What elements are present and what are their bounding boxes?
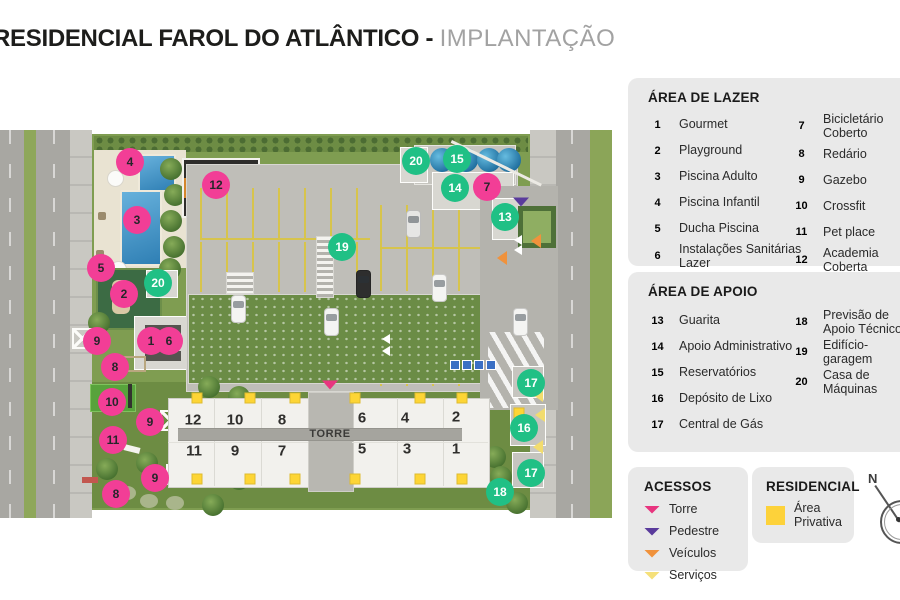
- legend-item-label: Veículos: [669, 546, 716, 560]
- bush: [166, 496, 184, 510]
- legend-apoio-col1: 13 Guarita 14 Apoio Administrativo 15 Re…: [646, 308, 792, 437]
- area-privativa-square: [415, 393, 426, 404]
- marker-number-badge: 13: [646, 309, 669, 332]
- legend-item: 7 Bicicletário Coberto: [790, 112, 900, 141]
- marker-number-badge: 8: [790, 143, 813, 166]
- direction-arrow-icon: [514, 235, 522, 245]
- area-privativa-square: [245, 474, 256, 485]
- map-marker: 2: [110, 280, 138, 308]
- legend-item-label: Torre: [669, 502, 697, 516]
- legend-item: 18 Previsão de Apoio Técnico: [790, 308, 900, 337]
- legend-item-label: Crossfit: [823, 199, 865, 213]
- legend-apoio-header: ÁREA DE APOIO: [648, 284, 758, 299]
- map-marker: 4: [116, 148, 144, 176]
- legend-item-label: Área Privativa: [794, 501, 854, 530]
- map-marker: 3: [123, 206, 151, 234]
- legend-item-label: Serviços: [669, 568, 717, 582]
- legend-item: Torre: [644, 500, 719, 519]
- crossfit-rack: [128, 384, 132, 408]
- torre-access-arrow-icon: [322, 381, 338, 390]
- unit-number: 3: [403, 441, 411, 458]
- area-privativa-square: [415, 474, 426, 485]
- access-arrow-icon: [644, 506, 660, 514]
- legend-residencial-items: Área Privativa: [766, 501, 854, 530]
- palm-tree: [160, 158, 182, 180]
- area-privativa-square: [192, 474, 203, 485]
- direction-arrow-icon: [382, 346, 390, 356]
- grass-verge-right: [590, 130, 612, 518]
- marker-number-badge: 20: [790, 370, 813, 393]
- marker-number-badge: 2: [646, 139, 669, 162]
- direction-arrow-icon: [514, 245, 522, 255]
- legend-item-label: Guarita: [679, 313, 720, 327]
- car: [432, 274, 447, 302]
- lane-line: [53, 130, 55, 518]
- legend-item-label: Edifício-garagem: [823, 338, 900, 367]
- area-privativa-square: [290, 393, 301, 404]
- map-marker: 6: [155, 327, 183, 355]
- map-marker: 15: [443, 145, 471, 173]
- legend-item: 16 Depósito de Lixo: [646, 386, 792, 411]
- veiculos-access-arrow-icon: [531, 234, 541, 248]
- legend-item-label: Bicicletário Coberto: [823, 112, 900, 141]
- page-title-main: RESIDENCIAL FAROL DO ATLÂNTICO -: [0, 25, 433, 52]
- access-arrow-icon: [644, 572, 660, 580]
- legend-item-label: Academia Coberta: [823, 246, 900, 275]
- map-marker: 11: [99, 426, 127, 454]
- map-marker: 18: [486, 478, 514, 506]
- legend-item: Pedestre: [644, 522, 719, 541]
- legend-residencial-header: RESIDENCIAL: [766, 479, 860, 494]
- map-marker: 12: [202, 171, 230, 199]
- site-plan-page: RESIDENCIAL FAROL DO ATLÂNTICO - IMPLANT…: [0, 0, 900, 600]
- marker-number-badge: 3: [646, 165, 669, 188]
- car: [406, 210, 421, 238]
- accessible-parking-sign: [450, 360, 460, 370]
- table: [98, 212, 106, 220]
- access-arrow-icon: [644, 550, 660, 558]
- unit-number: 5: [358, 441, 366, 458]
- map-marker: 16: [510, 414, 538, 442]
- map-marker: 10: [98, 388, 126, 416]
- page-title-sub: IMPLANTAÇÃO: [440, 25, 616, 52]
- garage-stair: [226, 272, 254, 294]
- legend-item: 8 Redário: [790, 142, 900, 167]
- marker-number-badge: 5: [646, 217, 669, 240]
- unit-number: 12: [185, 412, 202, 429]
- legend-item: 9 Gazebo: [790, 168, 900, 193]
- legend-lazer-header: ÁREA DE LAZER: [648, 90, 760, 105]
- legend-lazer-col2: 7 Bicicletário Coberto 8 Redário 9 Gazeb…: [790, 112, 900, 275]
- area-privativa-square: [192, 393, 203, 404]
- legend-item-label: Pedestre: [669, 524, 719, 538]
- car: [324, 308, 339, 336]
- marker-number-badge: 9: [790, 169, 813, 192]
- compass-center-dot: [896, 517, 900, 522]
- marker-number-badge: 15: [646, 361, 669, 384]
- car: [513, 308, 528, 336]
- accessible-parking-sign: [462, 360, 472, 370]
- unit-number: 1: [452, 441, 460, 458]
- unit-number: 10: [227, 412, 244, 429]
- legend-acessos: ACESSOS Torre Pedestre Veículos: [628, 467, 748, 571]
- marker-number-badge: 19: [790, 341, 813, 364]
- palm-tree: [163, 236, 185, 258]
- legend-acessos-header: ACESSOS: [644, 479, 711, 494]
- accessible-parking-sign: [486, 360, 496, 370]
- bench: [82, 477, 98, 483]
- map-marker: 14: [441, 174, 469, 202]
- car: [356, 270, 371, 298]
- legend-item: 17 Central de Gás: [646, 412, 792, 437]
- legend-item-label: Playground: [679, 143, 742, 157]
- tower-core: [308, 392, 354, 492]
- legend-acessos-items: Torre Pedestre Veículos Serviços: [644, 500, 719, 585]
- legend-item-label: Apoio Administrativo: [679, 339, 792, 353]
- page-title: RESIDENCIAL FAROL DO ATLÂNTICO - IMPLANT…: [0, 25, 615, 53]
- legend-item: 10 Crossfit: [790, 194, 900, 219]
- unit-number: 8: [278, 412, 286, 429]
- pedestre-access-arrow-icon: [513, 198, 529, 207]
- area-privativa-square: [350, 474, 361, 485]
- map-marker: 9: [141, 464, 169, 492]
- lane-line: [9, 130, 11, 518]
- map-marker: 19: [328, 233, 356, 261]
- legend-item: 12 Academia Coberta: [790, 246, 900, 275]
- accessible-parking-sign: [474, 360, 484, 370]
- area-privativa-square: [457, 474, 468, 485]
- legend-area-de-lazer: ÁREA DE LAZER 1 Gourmet 2 Playground 3 P…: [628, 78, 900, 266]
- area-privativa-square: [350, 393, 361, 404]
- bush: [140, 494, 158, 508]
- legend-item: 11 Pet place: [790, 220, 900, 245]
- servicos-access-arrow-icon: [533, 440, 543, 454]
- car: [231, 295, 246, 323]
- legend-area-de-apoio: ÁREA DE APOIO 13 Guarita 14 Apoio Admini…: [628, 272, 900, 452]
- marker-number-badge: 6: [646, 245, 669, 268]
- street-left-median: [24, 130, 36, 518]
- legend-item: 14 Apoio Administrativo: [646, 334, 792, 359]
- legend-item: 13 Guarita: [646, 308, 792, 333]
- unit-number: 4: [401, 410, 409, 427]
- unit-number: 7: [278, 443, 286, 460]
- access-arrow-icon: [644, 528, 660, 536]
- map-marker: 20: [402, 147, 430, 175]
- unit-divider: [352, 442, 488, 443]
- palm-tree: [160, 210, 182, 232]
- legend-apoio-col2: 18 Previsão de Apoio Técnico 19 Edifício…: [790, 308, 900, 396]
- marker-number-badge: 10: [790, 195, 813, 218]
- legend-item: 20 Casa de Máquinas: [790, 368, 900, 397]
- legend-item: 15 Reservatórios: [646, 360, 792, 385]
- area-privativa-swatch: [766, 506, 785, 525]
- map-marker: 20: [144, 269, 172, 297]
- legend-item-label: Central de Gás: [679, 417, 763, 431]
- area-privativa-square: [290, 474, 301, 485]
- legend-item-label: Piscina Infantil: [679, 195, 760, 209]
- tree: [96, 458, 118, 480]
- marker-number-badge: 7: [790, 115, 813, 138]
- direction-arrow-icon: [382, 334, 390, 344]
- legend-item-label: Piscina Adulto: [679, 169, 758, 183]
- legend-item-label: Casa de Máquinas: [823, 368, 900, 397]
- legend-item-label: Gazebo: [823, 173, 867, 187]
- map-marker: 8: [102, 480, 130, 508]
- legend-item-label: Previsão de Apoio Técnico: [823, 308, 900, 337]
- unit-number: 9: [231, 443, 239, 460]
- servicos-access-arrow-icon: [535, 408, 545, 422]
- area-privativa-square: [245, 393, 256, 404]
- parking-bays: [200, 188, 370, 238]
- legend-residencial: RESIDENCIAL Área Privativa: [752, 467, 854, 543]
- marker-number-badge: 17: [646, 413, 669, 436]
- unit-number: 11: [186, 443, 202, 460]
- map-marker: 17: [517, 369, 545, 397]
- legend-item: Serviços: [644, 566, 719, 585]
- veiculos-access-arrow-icon: [497, 251, 507, 265]
- street-right: [556, 130, 590, 518]
- map-marker: 13: [491, 203, 519, 231]
- legend-item: 19 Edifício-garagem: [790, 338, 900, 367]
- legend-item-label: Depósito de Lixo: [679, 391, 772, 405]
- map-marker: 8: [101, 353, 129, 381]
- legend-item: Área Privativa: [766, 501, 854, 530]
- unit-number: 2: [452, 409, 460, 426]
- marker-number-badge: 12: [790, 249, 813, 272]
- tree: [202, 494, 224, 516]
- legend-item: Veículos: [644, 544, 719, 563]
- map-marker: 9: [83, 327, 111, 355]
- lane-line: [571, 130, 573, 518]
- map-marker: 5: [87, 254, 115, 282]
- unit-number: 6: [358, 410, 366, 427]
- marker-number-badge: 16: [646, 387, 669, 410]
- map-marker: 7: [473, 173, 501, 201]
- area-privativa-square: [457, 393, 468, 404]
- marker-number-badge: 4: [646, 191, 669, 214]
- legend-item-label: Ducha Piscina: [679, 221, 759, 235]
- legend-item-label: Reservatórios: [679, 365, 756, 379]
- compass-icon: [880, 500, 900, 544]
- map-marker: 17: [517, 459, 545, 487]
- map-marker: 9: [136, 408, 164, 436]
- legend-item-label: Gourmet: [679, 117, 728, 131]
- marker-number-badge: 1: [646, 113, 669, 136]
- marker-number-badge: 14: [646, 335, 669, 358]
- marker-number-badge: 11: [790, 221, 813, 244]
- compass-north-label: N: [868, 471, 877, 486]
- marker-number-badge: 18: [790, 311, 813, 334]
- torre-label: TORRE: [309, 428, 350, 440]
- legend-item-label: Redário: [823, 147, 867, 161]
- legend-item-label: Pet place: [823, 225, 875, 239]
